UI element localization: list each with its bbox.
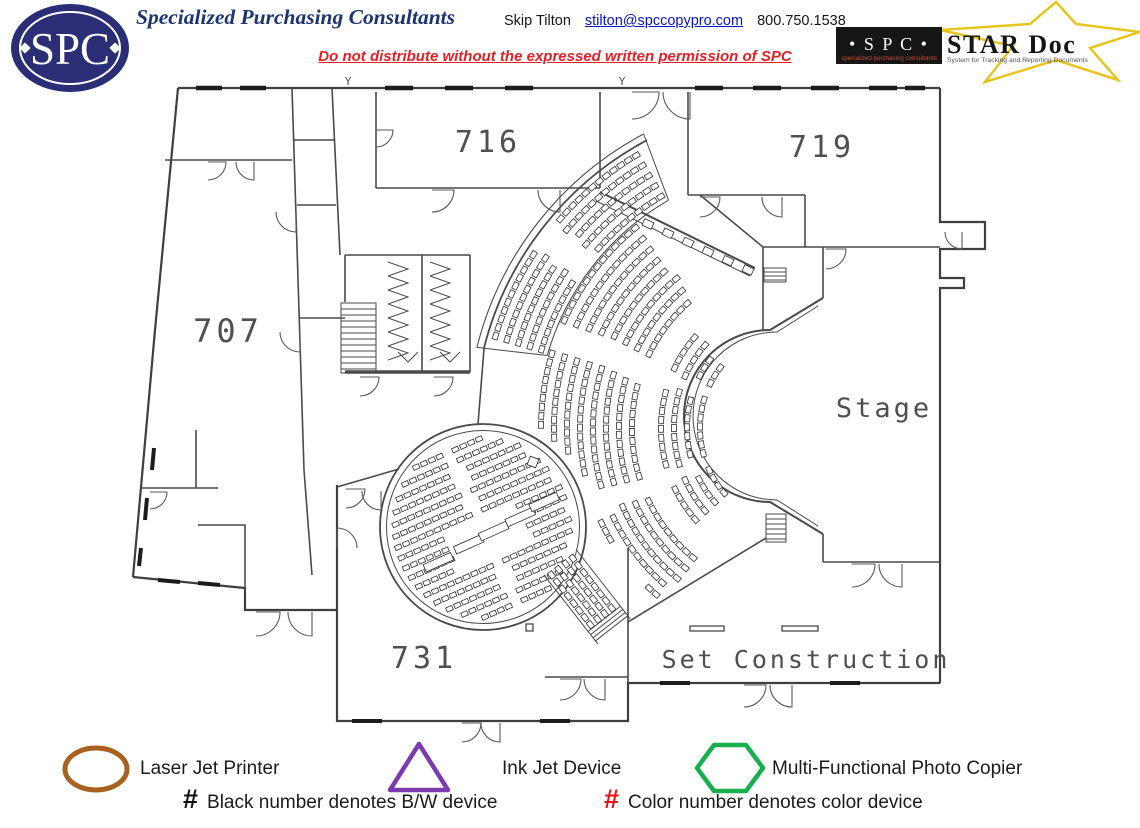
page: { "header": { "logo_text": "SPC", "compa… bbox=[0, 0, 1140, 828]
stardoc-logo-icon: • S P C • specialized purchasing consult… bbox=[828, 0, 1140, 88]
legend-note-color: # Color number denotes color device bbox=[604, 786, 923, 814]
room-label-731: 731 bbox=[391, 641, 457, 676]
legend-copier-label: Multi-Functional Photo Copier bbox=[772, 758, 1022, 780]
contact-row: Skip Tilton stilton@spccopypro.com 800.7… bbox=[504, 13, 846, 29]
stardoc-logo: • S P C • specialized purchasing consult… bbox=[828, 0, 1140, 88]
triangle-icon bbox=[390, 744, 448, 790]
legend-note-bw-text: Black number denotes B/W device bbox=[207, 792, 497, 814]
legend-laserjet-icon bbox=[60, 744, 132, 799]
contact-name: Skip Tilton bbox=[504, 13, 571, 29]
room-label-716: 716 bbox=[455, 125, 521, 160]
spc-logo: SPC bbox=[8, 2, 132, 94]
contact-email-link[interactable]: stilton@spccopypro.com bbox=[585, 13, 743, 29]
legend-note-color-text: Color number denotes color device bbox=[628, 792, 923, 814]
company-name: Specialized Purchasing Consultants bbox=[136, 5, 455, 30]
hexagon-icon bbox=[697, 745, 763, 791]
room-label-set-construction: Set Construction bbox=[662, 645, 951, 674]
benches bbox=[526, 624, 818, 631]
room-label-719: 719 bbox=[789, 130, 855, 165]
room-label-stage: Stage bbox=[836, 393, 932, 424]
stardoc-tagline: System for Tracking and Reporting Docume… bbox=[947, 57, 1089, 64]
grid-mark-y-right: Y bbox=[619, 75, 626, 88]
ellipse-icon bbox=[65, 748, 127, 790]
black-hash-icon: # bbox=[183, 786, 198, 813]
legend-inkjet-label: Ink Jet Device bbox=[502, 758, 621, 780]
auditorium-seats bbox=[392, 152, 754, 645]
distribution-notice: Do not distribute without the expressed … bbox=[285, 48, 825, 65]
red-hash-icon: # bbox=[604, 786, 619, 813]
room-label-707: 707 bbox=[193, 312, 263, 350]
floor-plan: 707 716 719 731 Stage Set Construction Y… bbox=[0, 0, 1140, 828]
stardoc-box-tagline: specialized purchasing consultants bbox=[841, 55, 937, 62]
legend-laserjet-label: Laser Jet Printer bbox=[140, 758, 279, 780]
spc-logo-icon: SPC bbox=[8, 2, 132, 94]
stardoc-title: STAR Doc bbox=[947, 30, 1076, 59]
spc-logo-text: SPC bbox=[30, 24, 110, 74]
stardoc-box-text: • S P C • bbox=[849, 34, 929, 54]
legend-note-bw: # Black number denotes B/W device bbox=[183, 786, 497, 814]
grid-mark-y-left: Y bbox=[345, 75, 352, 88]
